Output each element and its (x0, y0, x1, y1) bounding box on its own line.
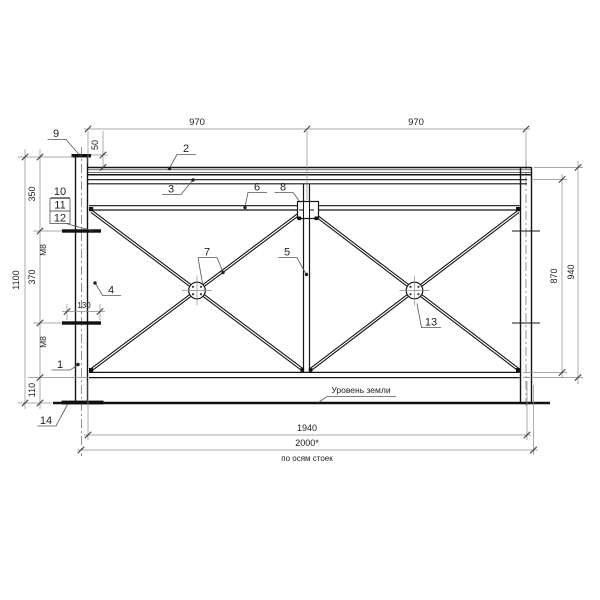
svg-text:7: 7 (204, 247, 210, 259)
left-round-gusset (182, 276, 212, 306)
diagonal-braces (91, 210, 519, 372)
dim-130: 130 (77, 301, 91, 310)
dim-bolt-length: 130 (62, 301, 105, 320)
dim-total-height: 1100 (11, 270, 21, 289)
dim-bottom-spans: 1940 2000* по осям стоек (77, 381, 538, 463)
handrail (88, 168, 531, 175)
svg-text:4: 4 (108, 285, 114, 297)
square-gusset (298, 202, 319, 219)
svg-text:14: 14 (40, 415, 52, 427)
connection-nodes (89, 207, 520, 372)
svg-text:5: 5 (284, 247, 290, 259)
svg-text:6: 6 (254, 182, 260, 194)
svg-text:8: 8 (280, 182, 286, 194)
bottom-rail (89, 372, 520, 377)
callout-6: 6 (243, 182, 267, 210)
callout-9: 9 (48, 128, 82, 157)
callout-8: 8 (275, 182, 301, 203)
dim-span-left: 970 (189, 117, 205, 128)
dim-rail-length: 1940 (297, 423, 317, 433)
note-ground-level: Уровень земли (319, 385, 397, 403)
svg-text:12: 12 (54, 213, 66, 225)
label-bolt-upper: M8 (38, 244, 48, 256)
callout-14: 14 (38, 405, 68, 428)
ground-level-label: Уровень земли (331, 385, 390, 395)
dim-frame-height: 940 (566, 264, 576, 279)
svg-text:9: 9 (53, 128, 59, 140)
callout-2: 2 (168, 143, 196, 170)
callout-13: 13 (417, 304, 441, 329)
dim-middle-segment: 370 (27, 269, 37, 284)
upper-bolt (62, 229, 101, 232)
right-post (521, 160, 532, 406)
callout-4: 4 (93, 281, 121, 296)
label-bolt-lower: M8 (38, 336, 48, 348)
dim-span-right: 970 (408, 117, 424, 128)
dim-post-spacing: 2000* (295, 438, 319, 448)
note-post-axes: по осям стоек (281, 454, 333, 463)
dim-offset-50: 50 (90, 140, 100, 150)
right-round-gusset (400, 276, 430, 306)
dim-left-chain: 1100 350 370 110 M8 M8 (11, 149, 88, 409)
base-plate (62, 401, 104, 405)
dim-panel-height: 870 (549, 268, 559, 283)
drawing-canvas: 970 970 50 1100 350 370 110 M8 M8 130 87… (0, 0, 600, 600)
technical-drawing-fence-section: 970 970 50 1100 350 370 110 M8 M8 130 87… (0, 0, 600, 600)
dim-upper-segment: 350 (27, 186, 37, 201)
dim-top-offset: 50 (90, 131, 108, 171)
svg-text:11: 11 (54, 200, 65, 212)
callout-3: 3 (162, 178, 195, 195)
upper-rail (88, 180, 527, 184)
svg-text:3: 3 (168, 184, 174, 196)
svg-text:1: 1 (57, 359, 63, 371)
svg-text:2: 2 (183, 143, 189, 155)
lower-bolt (62, 321, 101, 324)
anchor-bolts (62, 229, 540, 324)
dim-lower-segment: 110 (27, 383, 37, 397)
svg-text:10: 10 (54, 186, 66, 198)
svg-text:13: 13 (425, 317, 437, 329)
